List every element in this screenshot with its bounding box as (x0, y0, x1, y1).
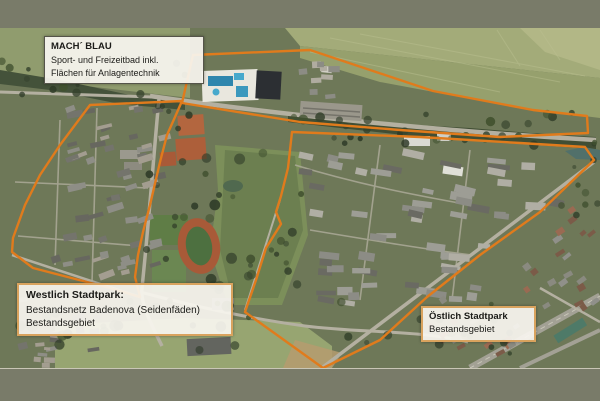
pond (223, 180, 243, 192)
label-machblau-title: MACH´ BLAU (51, 40, 197, 53)
label-machblau: MACH´ BLAU Sport- und Freizeitbad inkl. … (44, 36, 204, 84)
label-east-line1: Bestandsgebiet (429, 324, 528, 336)
bath-building (255, 70, 281, 99)
letterbox-bar-bottom (0, 368, 600, 401)
label-machblau-line2: Flächen für Anlagentechnik (51, 67, 197, 79)
label-west-line1: Bestandsnetz Badenova (Seidenfäden) (26, 304, 224, 317)
label-west-line2: Bestandsgebiet (26, 317, 224, 330)
label-oestlich-stadtpark: Östlich Stadtpark Bestandsgebiet (421, 306, 536, 342)
pool-complex (201, 69, 281, 102)
label-westlich-stadtpark: Westlich Stadtpark: Bestandsnetz Badenov… (17, 283, 233, 336)
label-east-title: Östlich Stadtpark (429, 311, 528, 323)
label-west-title: Westlich Stadtpark: (26, 289, 224, 303)
presentation-slide: { "frame": { "bar_color": "#797b69", "ma… (0, 0, 600, 400)
label-machblau-line1: Sport- und Freizeitbad inkl. (51, 54, 197, 66)
letterbox-bar-top (0, 0, 600, 29)
